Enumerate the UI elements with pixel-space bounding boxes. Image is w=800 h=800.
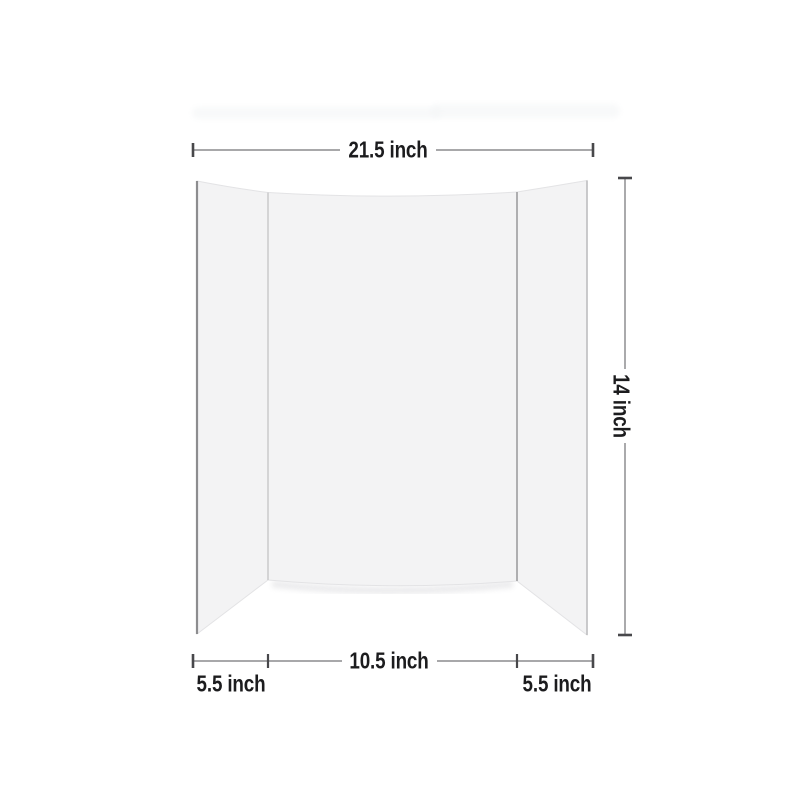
diagram-canvas: 21.5 inch 14 inch 10.5 inch 5.5 inch 5.5… [0, 0, 800, 800]
background-artifact-band [192, 104, 620, 119]
board-left-wing [197, 181, 268, 634]
dimension-label-center-panel-width: 10.5 inch [349, 650, 428, 673]
dimension-label-left-wing-width: 5.5 inch [197, 673, 266, 696]
board-center-panel [268, 192, 517, 586]
dimension-label-right-wing-width: 5.5 inch [523, 673, 592, 696]
trifold-board-diagram [0, 0, 800, 800]
dimension-label-height: 14 inch [610, 374, 633, 438]
dimension-label-total-width: 21.5 inch [348, 139, 427, 162]
board-right-wing [517, 181, 587, 636]
